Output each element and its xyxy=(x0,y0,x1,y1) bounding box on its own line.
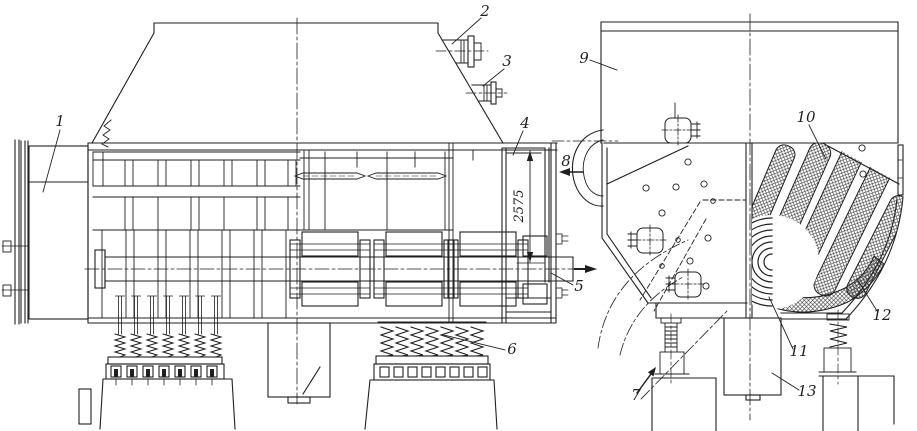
support-stud-right xyxy=(819,310,894,431)
clamp-latch xyxy=(628,225,666,255)
callout-5-label: 5 xyxy=(574,277,584,295)
foundation-right xyxy=(365,380,497,429)
pedestal-13 xyxy=(724,318,781,400)
callout-10-label: 10 xyxy=(796,108,816,126)
hood xyxy=(92,23,503,147)
discharge-duct xyxy=(502,148,568,322)
section-hatch xyxy=(725,139,912,312)
end-view xyxy=(552,14,912,431)
engineering-drawing: 1 2 3 4 5 6 7 8 9 10 11 12 13 2575 xyxy=(0,0,917,431)
inlet-stub-3 xyxy=(466,82,507,104)
foundation-left xyxy=(100,379,235,429)
clamp-latches xyxy=(628,103,704,299)
spring-bank-left xyxy=(106,296,224,385)
callout-7-label: 7 xyxy=(631,386,641,404)
side-view xyxy=(2,18,597,429)
spring-bank-right xyxy=(374,322,490,380)
callout-6-label: 6 xyxy=(507,340,517,358)
shaft-flow-arrow xyxy=(585,265,597,273)
spiral-coil xyxy=(725,215,819,309)
callout-12-label: 12 xyxy=(872,306,891,324)
callout-2-label: 2 xyxy=(479,2,490,20)
shaft-assembly xyxy=(85,232,597,306)
callout-11-label: 11 xyxy=(789,342,808,360)
callout-8-label: 8 xyxy=(561,152,571,170)
callout-13-label: 13 xyxy=(797,382,816,400)
foundation-column-right xyxy=(823,376,894,431)
inlet-stub-2 xyxy=(436,36,488,67)
callout-3-leader xyxy=(483,69,504,86)
end-cap xyxy=(2,140,88,324)
foundation-column-left xyxy=(652,378,716,431)
drawing-svg: 1 2 3 4 5 6 7 8 9 10 11 12 13 2575 xyxy=(0,0,917,431)
callout-13-leader xyxy=(772,373,799,390)
callout-9-label: 9 xyxy=(579,49,589,67)
callout-3-label: 3 xyxy=(502,52,512,70)
callout-1-label: 1 xyxy=(55,112,65,130)
upper-panels xyxy=(295,150,473,230)
callout-6-leader xyxy=(444,335,505,350)
dimension-2575-value: 2575 xyxy=(512,189,527,223)
callout-4-label: 4 xyxy=(519,114,530,132)
clamp-latch xyxy=(662,115,700,145)
callout-1-leader xyxy=(43,130,60,192)
callout-5-leader xyxy=(551,273,573,285)
callout-9-leader xyxy=(590,60,617,70)
hidden-chute-dashes xyxy=(640,199,746,311)
